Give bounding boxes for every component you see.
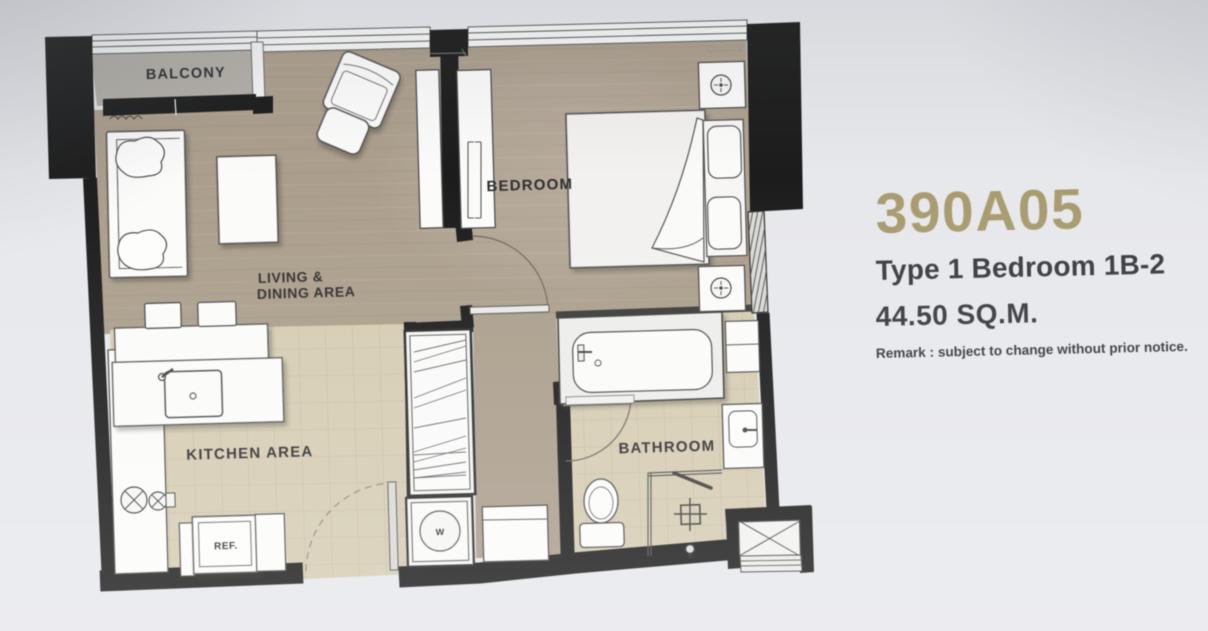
svg-text:DINING AREA: DINING AREA xyxy=(257,283,356,302)
svg-text:Type 1 Bedroom 1B-2: Type 1 Bedroom 1B-2 xyxy=(875,248,1165,286)
svg-text:KITCHEN AREA: KITCHEN AREA xyxy=(186,443,314,464)
svg-text:REF.: REF. xyxy=(214,541,238,553)
svg-text:BALCONY: BALCONY xyxy=(146,65,227,83)
svg-text:44.50 SQ.M.: 44.50 SQ.M. xyxy=(875,297,1038,332)
svg-text:LIVING &: LIVING & xyxy=(258,268,324,286)
svg-text:BEDROOM: BEDROOM xyxy=(486,176,573,195)
svg-text:W: W xyxy=(436,527,445,537)
svg-text:BATHROOM: BATHROOM xyxy=(618,438,715,458)
svg-text:Remark : subject to change wit: Remark : subject to change without prior… xyxy=(876,339,1188,361)
svg-text:390A05: 390A05 xyxy=(875,177,1085,246)
